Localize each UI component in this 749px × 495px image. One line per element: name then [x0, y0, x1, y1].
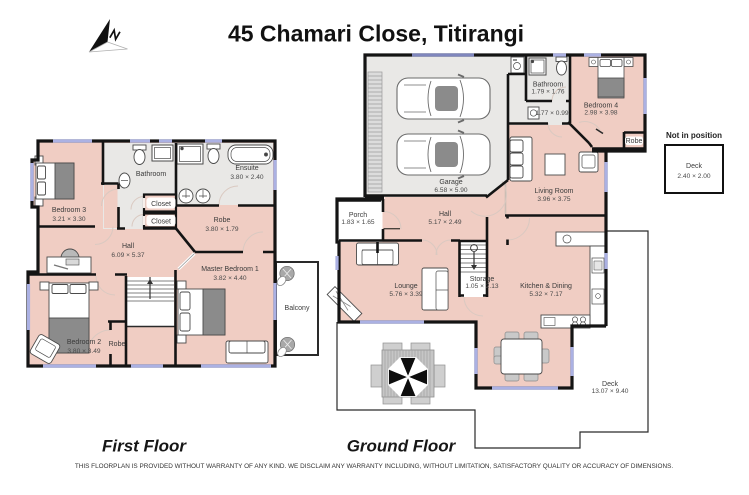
svg-text:1.77 × 0.99: 1.77 × 0.99 — [535, 110, 569, 117]
svg-text:Bathroom: Bathroom — [136, 171, 167, 178]
svg-text:Bedroom 2: Bedroom 2 — [67, 339, 101, 346]
svg-text:Kitchen & Dining: Kitchen & Dining — [520, 283, 572, 290]
svg-text:5.17 × 2.49: 5.17 × 2.49 — [428, 219, 462, 226]
svg-text:Ensuite: Ensuite — [235, 165, 258, 172]
svg-text:Master Bedroom 1: Master Bedroom 1 — [201, 266, 259, 273]
svg-text:3.96 × 3.75: 3.96 × 3.75 — [537, 196, 571, 203]
svg-text:Robe: Robe — [214, 217, 231, 224]
svg-text:Deck: Deck — [686, 163, 702, 170]
svg-text:Robe: Robe — [626, 138, 643, 145]
svg-text:THIS FLOORPLAN IS PROVIDED WIT: THIS FLOORPLAN IS PROVIDED WITHOUT WARRA… — [75, 463, 674, 470]
svg-text:1.83 × 1.65: 1.83 × 1.65 — [341, 219, 375, 226]
svg-text:First Floor: First Floor — [102, 437, 187, 456]
svg-text:Ground Floor: Ground Floor — [347, 437, 457, 456]
svg-text:Hall: Hall — [439, 211, 452, 218]
svg-text:6.58 × 5.90: 6.58 × 5.90 — [434, 187, 468, 194]
svg-text:45 Chamari Close, Titirangi: 45 Chamari Close, Titirangi — [228, 21, 524, 47]
svg-text:Balcony: Balcony — [285, 305, 310, 312]
svg-text:3.82 × 4.40: 3.82 × 4.40 — [213, 275, 247, 282]
svg-text:Bedroom 4: Bedroom 4 — [584, 103, 618, 110]
svg-text:2.40 × 2.00: 2.40 × 2.00 — [677, 173, 711, 180]
svg-text:6.09 × 5.37: 6.09 × 5.37 — [111, 252, 145, 259]
svg-text:1.05 × 2.13: 1.05 × 2.13 — [465, 283, 499, 290]
svg-text:13.07 × 9.40: 13.07 × 9.40 — [592, 388, 629, 395]
svg-text:3.80 × 2.40: 3.80 × 2.40 — [230, 174, 264, 181]
svg-text:Robe: Robe — [109, 341, 126, 348]
svg-text:Porch: Porch — [349, 212, 367, 219]
svg-text:Storage: Storage — [470, 276, 495, 283]
svg-text:Lounge: Lounge — [394, 283, 417, 290]
svg-text:Bathroom: Bathroom — [533, 82, 564, 89]
svg-text:3.80 × 1.79: 3.80 × 1.79 — [205, 226, 239, 233]
svg-text:Closet: Closet — [151, 219, 171, 226]
svg-text:Bedroom 3: Bedroom 3 — [52, 207, 86, 214]
svg-text:Deck: Deck — [602, 381, 618, 388]
svg-text:1.79 × 1.76: 1.79 × 1.76 — [531, 89, 565, 96]
svg-text:3.80 × 3.49: 3.80 × 3.49 — [67, 348, 101, 355]
svg-text:5.76 × 3.39: 5.76 × 3.39 — [389, 291, 423, 298]
svg-text:Living Room: Living Room — [535, 188, 574, 195]
svg-text:3.21 × 3.30: 3.21 × 3.30 — [52, 216, 86, 223]
svg-text:Not in position: Not in position — [666, 131, 722, 140]
svg-text:Hall: Hall — [122, 243, 135, 250]
svg-text:Closet: Closet — [151, 201, 171, 208]
svg-text:2.98 × 3.98: 2.98 × 3.98 — [584, 110, 618, 117]
svg-text:Garage: Garage — [439, 179, 462, 186]
svg-text:5.32 × 7.17: 5.32 × 7.17 — [529, 291, 563, 298]
